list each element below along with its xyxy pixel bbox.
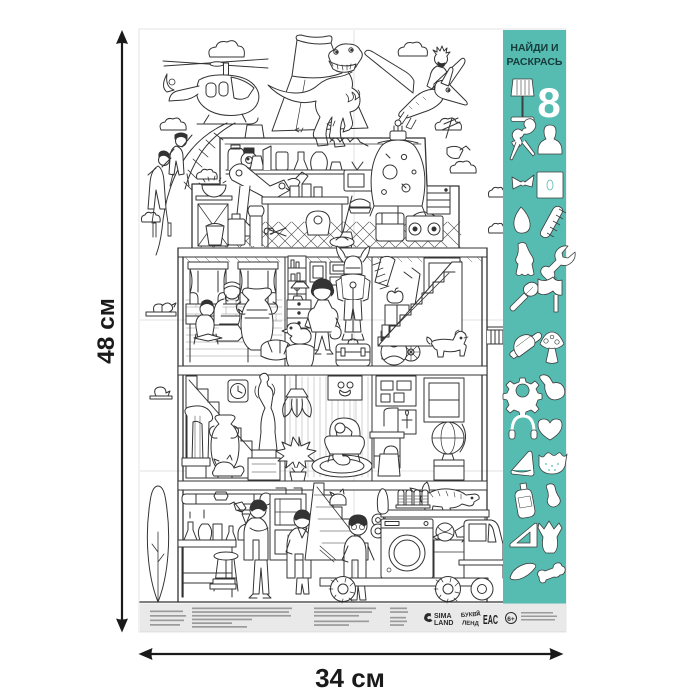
svg-text:SIMA: SIMA	[434, 613, 452, 620]
svg-text:8: 8	[537, 79, 560, 126]
svg-text:34 см: 34 см	[315, 663, 385, 693]
svg-text:48 см: 48 см	[93, 298, 120, 364]
svg-text:ЛЕНД: ЛЕНД	[462, 621, 480, 628]
svg-text:НАЙДИ И: НАЙДИ И	[510, 41, 558, 54]
svg-text:EAC: EAC	[483, 612, 498, 627]
svg-text:РАСКРАСЬ: РАСКРАСЬ	[507, 56, 563, 68]
svg-text:LAND: LAND	[434, 620, 453, 627]
svg-text:6+: 6+	[507, 616, 515, 623]
